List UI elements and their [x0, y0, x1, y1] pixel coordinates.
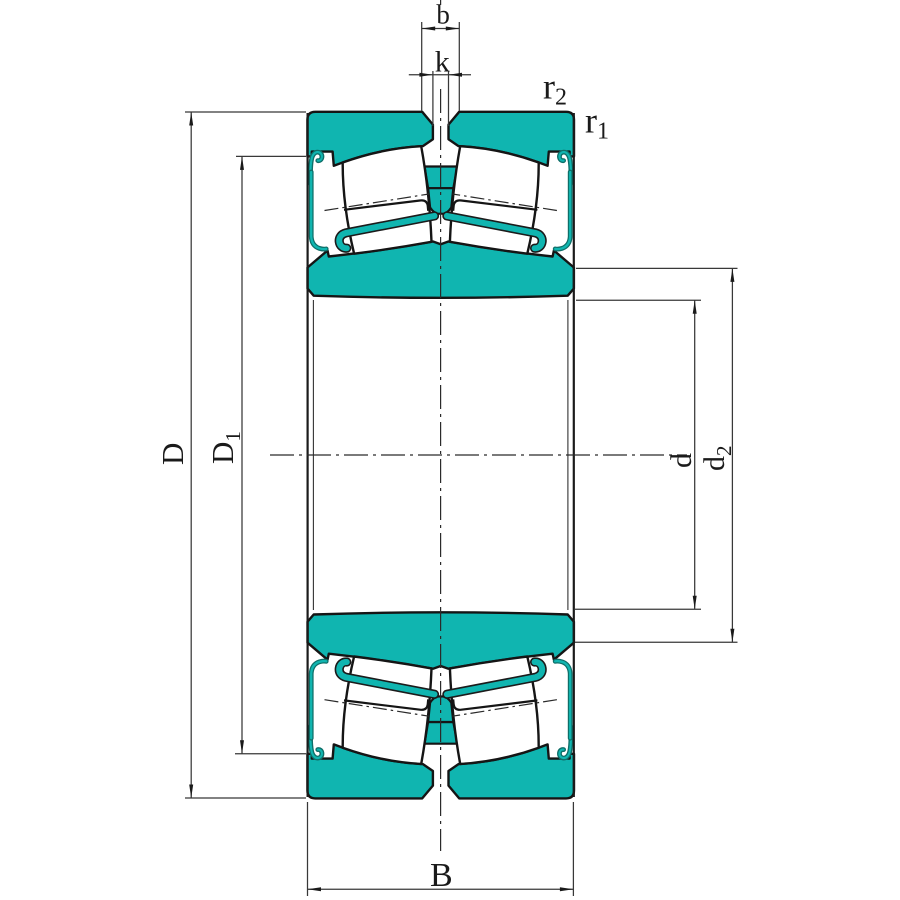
svg-text:d: d — [665, 453, 698, 468]
svg-text:b: b — [436, 0, 450, 29]
svg-text:r1: r1 — [585, 101, 609, 145]
svg-text:D1: D1 — [205, 431, 245, 464]
svg-text:r2: r2 — [543, 67, 567, 111]
svg-text:d2: d2 — [698, 446, 736, 472]
svg-text:B: B — [430, 857, 453, 894]
svg-text:D: D — [155, 443, 190, 465]
svg-text:k: k — [435, 46, 450, 79]
